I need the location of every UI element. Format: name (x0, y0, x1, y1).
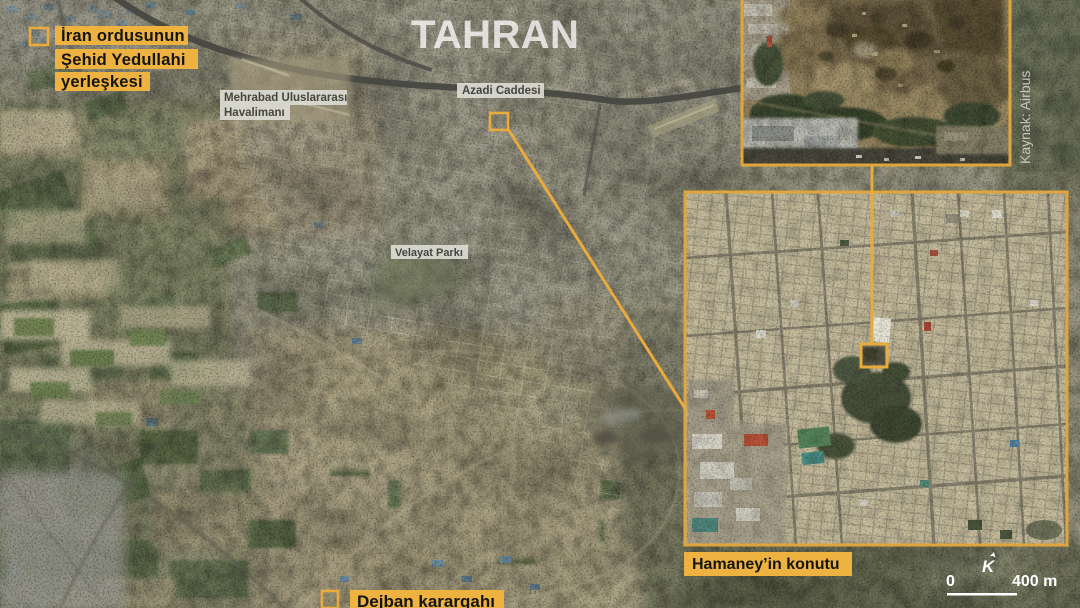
svg-text:Hamaney’in konutu: Hamaney’in konutu (692, 556, 840, 573)
svg-text:Mehrabad Uluslararası: Mehrabad Uluslararası (224, 92, 347, 104)
svg-text:yerleşkesi: yerleşkesi (61, 73, 143, 91)
svg-text:Azadi Caddesi: Azadi Caddesi (462, 85, 541, 97)
svg-text:Havalimanı: Havalimanı (224, 107, 285, 119)
svg-text:Şehid Yedullahi: Şehid Yedullahi (61, 51, 186, 69)
svg-text:Dejban karargahı: Dejban karargahı (357, 592, 495, 608)
svg-text:0: 0 (946, 573, 955, 590)
svg-text:TAHRAN: TAHRAN (411, 13, 579, 57)
svg-text:Velayat Parkı: Velayat Parkı (395, 247, 463, 259)
svg-text:İran ordusunun: İran ordusunun (61, 27, 185, 45)
svg-text:K: K (982, 557, 996, 576)
svg-text:Kaynak: Airbus: Kaynak: Airbus (1017, 71, 1033, 164)
svg-text:400 m: 400 m (1012, 573, 1057, 590)
